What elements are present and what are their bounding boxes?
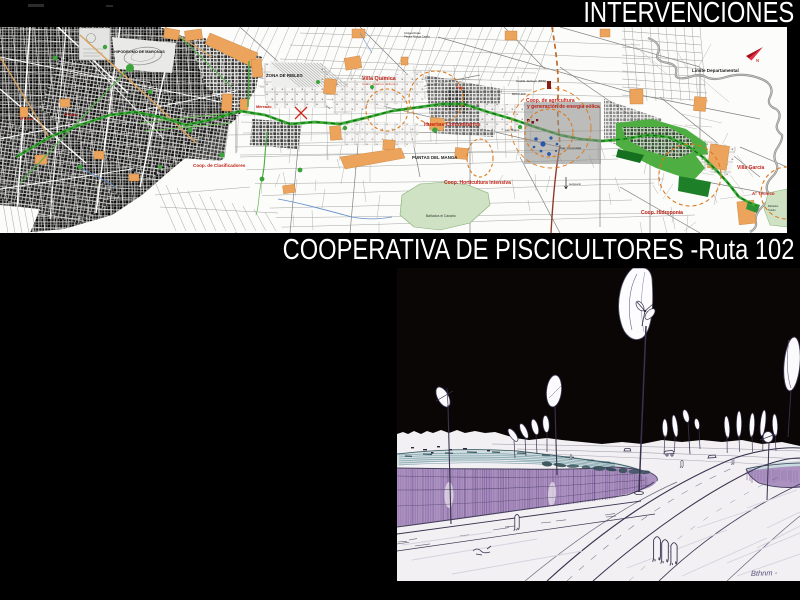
- svg-text:HIPODROMO DE MARONAS: HIPODROMO DE MARONAS: [114, 50, 165, 54]
- svg-text:Bº Italia: Bº Italia: [64, 113, 78, 117]
- svg-text:Limite Departamental: Limite Departamental: [692, 68, 739, 73]
- svg-text:BºsJard: BºsJard: [20, 117, 34, 121]
- svg-text:Huertos Comunitarios: Huertos Comunitarios: [424, 122, 481, 128]
- svg-text:Toledo: Toledo: [768, 208, 776, 212]
- svg-text:N: N: [756, 58, 759, 63]
- svg-text:PIM: PIM: [456, 86, 463, 90]
- svg-text:Bañados el Canario: Bañados el Canario: [426, 214, 456, 218]
- svg-text:Aeropuerto: Aeropuerto: [569, 183, 581, 186]
- svg-text:y generación de energía eólica: y generación de energía eólica: [527, 104, 600, 110]
- svg-text:Parque Manga Capilla: Parque Manga Capilla: [404, 35, 430, 39]
- svg-text:Coop. de Clasificadores: Coop. de Clasificadores: [193, 163, 246, 168]
- svg-text:Capilla Jackson (BPM): Capilla Jackson (BPM): [516, 79, 546, 83]
- svg-text:Centro deportivo Cultural: Centro deportivo Cultural: [362, 82, 396, 86]
- svg-text:Cap. Comunidad: Cap. Comunidad: [560, 146, 581, 150]
- svg-text:Coop. Hidroponía: Coop. Hidroponía: [641, 210, 683, 216]
- svg-text:BPM HCP: BPM HCP: [512, 92, 526, 96]
- svg-text:Mercado: Mercado: [256, 105, 272, 109]
- svg-text:Bañados: Bañados: [768, 204, 779, 208]
- svg-text:Lab. Nuevo: Lab. Nuevo: [505, 128, 520, 132]
- svg-text:Villa García: Villa García: [737, 165, 764, 171]
- svg-text:ZONA DE RIELES: ZONA DE RIELES: [266, 73, 303, 78]
- svg-text:PUNTAS DEL MANGA: PUNTAS DEL MANGA: [412, 155, 458, 160]
- svg-text:Coop. Horticultura intensiva: Coop. Horticultura intensiva: [444, 180, 511, 186]
- svg-text:Bthnm -: Bthnm -: [751, 568, 778, 578]
- svg-text:Aº Técnico: Aº Técnico: [752, 191, 775, 196]
- svg-text:Antigua Ruata: Antigua Ruata: [404, 31, 421, 35]
